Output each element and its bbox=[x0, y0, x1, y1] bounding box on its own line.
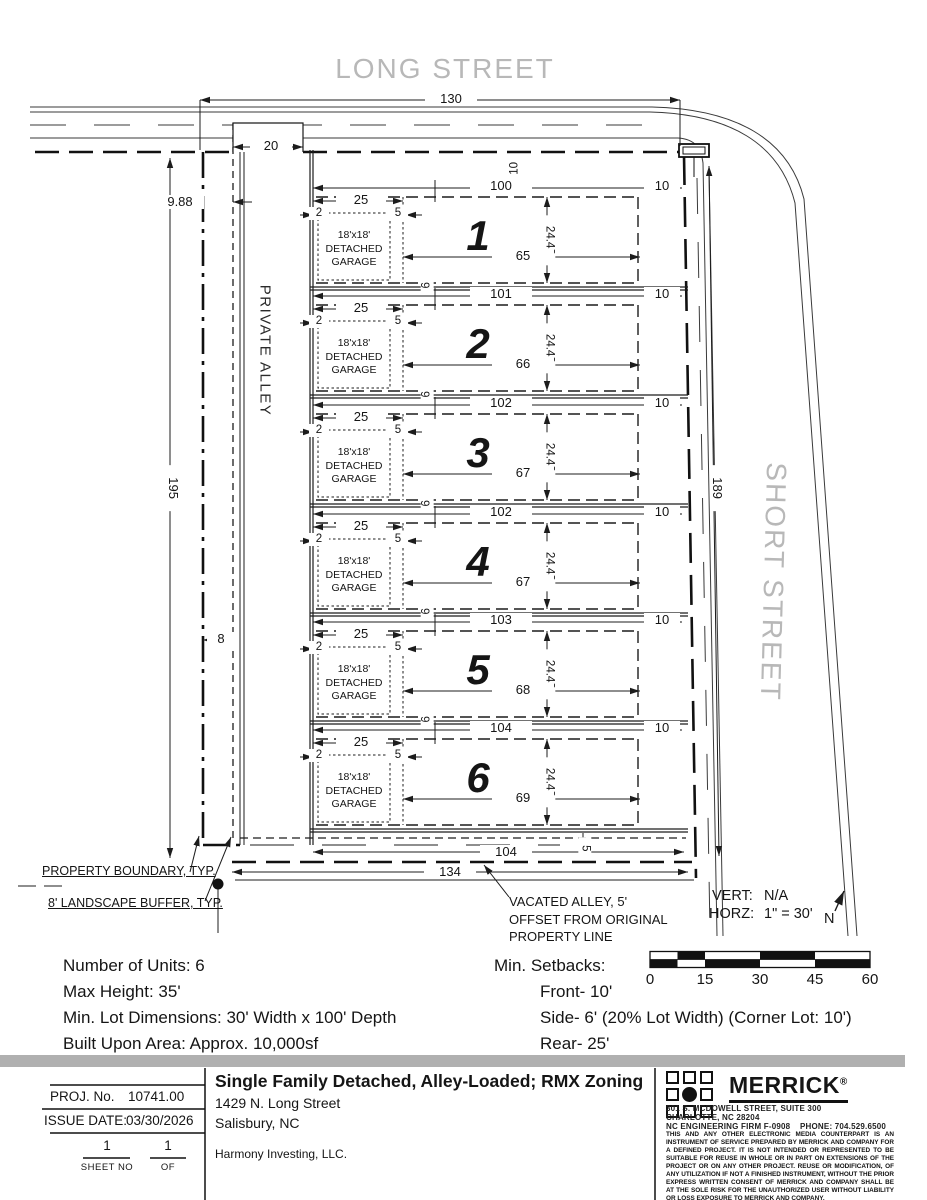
lot6-garage-label: 18'x18'DETACHEDGARAGE bbox=[317, 771, 391, 812]
dim-bottom-width: 134 bbox=[424, 865, 476, 879]
note-lot-dimensions: Min. Lot Dimensions: 30' Width x 100' De… bbox=[63, 1008, 396, 1028]
lot4-front-dim: 25 bbox=[336, 519, 386, 533]
lot3-gap-dim: 5 bbox=[388, 424, 408, 437]
lot2-side-dim: 6 bbox=[421, 275, 434, 295]
lot5-frontage: 103 bbox=[470, 613, 532, 627]
lot5-side-dim: 6 bbox=[421, 601, 434, 621]
landscape-buffer-callout: 8' LANDSCAPE BUFFER, TYP. bbox=[48, 896, 223, 910]
lot1-garage-side-dim: 2 bbox=[309, 207, 329, 220]
lot4-rear-dim: 67 bbox=[492, 575, 554, 589]
lot1-corner-dim: 10 bbox=[644, 179, 680, 193]
vert-scale-value: N/A bbox=[764, 888, 788, 904]
lot2-garage-side-dim: 2 bbox=[309, 315, 329, 328]
vert-scale-label: VERT: bbox=[712, 888, 753, 904]
issue-date-label: ISSUE DATE: bbox=[44, 1113, 127, 1128]
lot4-gap-dim: 5 bbox=[388, 533, 408, 546]
scalebar-tick-0: 0 bbox=[635, 971, 665, 988]
of-label: OF bbox=[153, 1162, 183, 1173]
scalebar-tick-60: 60 bbox=[855, 971, 885, 988]
lot4-garage-label: 18'x18'DETACHEDGARAGE bbox=[317, 555, 391, 596]
lot5-garage-side-dim: 2 bbox=[309, 641, 329, 654]
note-max-height: Max Height: 35' bbox=[63, 982, 181, 1002]
lot3-rear-dim: 67 bbox=[492, 466, 554, 480]
horz-scale-value: 1" = 30' bbox=[764, 906, 813, 922]
setback-rear: Rear- 25' bbox=[540, 1034, 609, 1054]
project-address-line2: Salisbury, NC bbox=[215, 1115, 300, 1131]
lot3-front-dim: 25 bbox=[336, 410, 386, 424]
scalebar-tick-15: 15 bbox=[690, 971, 720, 988]
lot6-rear-dim: 69 bbox=[492, 791, 554, 805]
lot6-gap-dim: 5 bbox=[388, 749, 408, 762]
horz-scale-label: HORZ: bbox=[709, 906, 754, 922]
project-address-line1: 1429 N. Long Street bbox=[215, 1095, 340, 1111]
property-boundary-callout: PROPERTY BOUNDARY, TYP. bbox=[42, 864, 216, 878]
lot5-rear-dim: 68 bbox=[492, 683, 554, 697]
lot6-garage-side-dim: 2 bbox=[309, 749, 329, 762]
note-units: Number of Units: 6 bbox=[63, 956, 205, 976]
dim-overall-width: 130 bbox=[425, 92, 477, 106]
short-street-label: SHORT STREET bbox=[754, 452, 793, 713]
site-plan-sheet: LONG STREET SHORT STREET PRIVATE ALLEY 1… bbox=[0, 0, 927, 1200]
sheet-number: 1 bbox=[92, 1138, 122, 1153]
firm-disclaimer: THIS AND ANY OTHER ELECTRONIC MEDIA COUN… bbox=[666, 1131, 894, 1200]
client-name: Harmony Investing, LLC. bbox=[215, 1147, 347, 1161]
lot2-rear-dim: 66 bbox=[492, 357, 554, 371]
lot1-rear-dim: 65 bbox=[492, 249, 554, 263]
issue-date-value: 03/30/2026 bbox=[126, 1113, 194, 1128]
sheet-number-label: SHEET NO bbox=[80, 1162, 134, 1173]
lot3-side-dim: 6 bbox=[421, 384, 434, 404]
lot4-corner-dim: 10 bbox=[644, 505, 680, 519]
lot6-front-dim: 25 bbox=[336, 735, 386, 749]
lot1-garage-label: 18'x18'DETACHEDGARAGE bbox=[317, 229, 391, 270]
dim-alley-offset: 5 bbox=[579, 837, 592, 859]
lot3-frontage: 102 bbox=[470, 396, 532, 410]
proj-no-value: 10741.00 bbox=[128, 1089, 184, 1104]
firm-name: MERRICK® bbox=[729, 1072, 848, 1103]
dim-buffer-width: 8 bbox=[207, 632, 235, 646]
lot4-side-dim: 6 bbox=[421, 493, 434, 513]
lot5-garage-label: 18'x18'DETACHEDGARAGE bbox=[317, 663, 391, 704]
setbacks-title: Min. Setbacks: bbox=[494, 956, 606, 976]
lot1-gap-dim: 5 bbox=[388, 207, 408, 220]
lot3-garage-side-dim: 2 bbox=[309, 424, 329, 437]
lot5-corner-dim: 10 bbox=[644, 613, 680, 627]
project-title: Single Family Detached, Alley-Loaded; RM… bbox=[215, 1071, 643, 1092]
lot2-garage-label: 18'x18'DETACHEDGARAGE bbox=[317, 337, 391, 378]
of-number: 1 bbox=[153, 1138, 183, 1153]
note-built-area: Built Upon Area: Approx. 10,000sf bbox=[63, 1034, 318, 1054]
scalebar-tick-30: 30 bbox=[745, 971, 775, 988]
lot1-frontage: 100 bbox=[470, 179, 532, 193]
registered-mark: ® bbox=[840, 1076, 848, 1087]
dim-west-offset: 9.88 bbox=[156, 195, 204, 209]
setback-front: Front- 10' bbox=[540, 982, 612, 1002]
vacated-alley-callout: VACATED ALLEY, 5'OFFSET FROM ORIGINALPRO… bbox=[509, 893, 668, 946]
setback-side: Side- 6' (20% Lot Width) (Corner Lot: 10… bbox=[540, 1008, 852, 1028]
lot4-frontage: 102 bbox=[470, 505, 532, 519]
dim-alley-opening: 20 bbox=[250, 139, 292, 153]
lot6-side-dim: 6 bbox=[421, 709, 434, 729]
proj-no-label: PROJ. No. bbox=[50, 1089, 115, 1104]
private-alley-label: PRIVATE ALLEY bbox=[257, 276, 274, 426]
lot1-front-dim: 25 bbox=[336, 193, 386, 207]
lot4-garage-side-dim: 2 bbox=[309, 533, 329, 546]
dim-rear-width: 104 bbox=[480, 845, 532, 859]
lot5-front-dim: 25 bbox=[336, 627, 386, 641]
lot3-garage-label: 18'x18'DETACHEDGARAGE bbox=[317, 446, 391, 487]
lot2-corner-dim: 10 bbox=[644, 287, 680, 301]
lot2-frontage: 101 bbox=[470, 287, 532, 301]
dim-east-depth: 189 bbox=[710, 465, 724, 511]
lot5-gap-dim: 5 bbox=[388, 641, 408, 654]
long-street-label: LONG STREET bbox=[330, 53, 560, 85]
divider-bar bbox=[0, 1055, 905, 1067]
dim-west-depth: 195 bbox=[166, 465, 180, 511]
lot2-front-dim: 25 bbox=[336, 301, 386, 315]
lot6-corner-dim: 10 bbox=[644, 721, 680, 735]
lot3-corner-dim: 10 bbox=[644, 396, 680, 410]
lot2-gap-dim: 5 bbox=[388, 315, 408, 328]
lot6-frontage: 104 bbox=[470, 721, 532, 735]
north-label: N bbox=[824, 911, 834, 927]
scalebar-tick-45: 45 bbox=[800, 971, 830, 988]
